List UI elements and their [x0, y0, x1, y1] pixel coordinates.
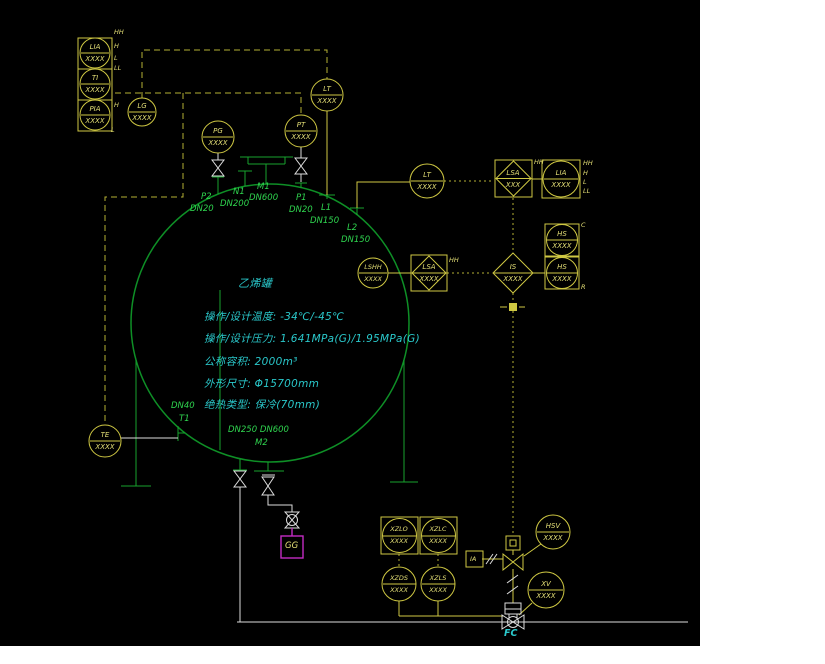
instrument-pg[interactable]: PGXXXX — [198, 125, 238, 149]
shutdown-valve-assembly — [466, 536, 524, 629]
nozzle-l1-dn: DN150 — [310, 216, 339, 226]
spec-dimension: 外形尺寸: Φ15700mm — [204, 376, 319, 391]
nozzle-m1: M1 — [257, 182, 270, 192]
support-leg-left — [121, 360, 151, 486]
alarm-l: L — [583, 178, 587, 186]
nozzle-n1: N1 — [233, 187, 245, 197]
instrument-xzlo[interactable]: XZLOXXXX — [379, 523, 419, 547]
instrument-xzlc[interactable]: XZLCXXXX — [418, 523, 458, 547]
instrument-lg[interactable]: LGXXXX — [122, 100, 162, 124]
alarm-h: H — [114, 42, 119, 50]
hs-suffix-r: R — [581, 283, 586, 291]
alarm-h: H — [114, 101, 119, 109]
control-valve-body — [503, 554, 523, 570]
nozzle-l2: L2 — [347, 223, 357, 233]
pid-drawing-page: LIAXXXX TIXXXX PIAXXXX LGXXXX PGXXXX PTX… — [0, 0, 825, 664]
valve-actuator — [506, 536, 520, 550]
instrument-pt[interactable]: PTXXXX — [281, 119, 321, 143]
spec-insulation: 绝热类型: 保冷(70mm) — [204, 397, 320, 412]
energize-symbol — [509, 303, 517, 311]
instrument-hsv[interactable]: HSVXXXX — [533, 520, 573, 544]
instrument-lsa-mid[interactable]: LSAXXXX — [409, 261, 449, 285]
alarm-hh: HH — [534, 158, 544, 166]
nozzle-p2-dn: DN20 — [190, 204, 214, 214]
instrument-lshh[interactable]: LSHHXXXX — [353, 261, 393, 285]
alarm-hh: HH — [449, 256, 459, 264]
pt-root-valve — [295, 158, 307, 174]
m2-drain-valve — [262, 477, 274, 495]
spec-volume: 公称容积: 2000m³ — [204, 354, 298, 369]
instrument-lt-top[interactable]: LTXXXX — [307, 83, 347, 107]
instrument-lia-right[interactable]: LIAXXXX — [541, 167, 581, 191]
alarm-hh: HH — [583, 159, 593, 167]
alarm-ll: LL — [114, 64, 121, 72]
nozzle-p2: P2 — [201, 192, 212, 202]
alarm-ll: LL — [583, 187, 590, 195]
nozzle-t1: T1 — [179, 414, 190, 424]
diagram-geometry — [0, 0, 700, 646]
support-leg-right — [390, 360, 418, 482]
nozzle-m2-dn: DN250 DN600 — [228, 425, 289, 435]
gg-vent-label: GG — [285, 541, 298, 551]
instrument-is[interactable]: ISXXXX — [493, 261, 533, 285]
instrument-ti[interactable]: TIXXXX — [75, 72, 115, 96]
alarm-h: H — [583, 169, 588, 177]
bottom-outlet-valve — [234, 471, 246, 487]
alarm-l: L — [114, 54, 118, 62]
cad-canvas[interactable]: LIAXXXX TIXXXX PIAXXXX LGXXXX PGXXXX PTX… — [0, 0, 700, 646]
instrument-lt-right[interactable]: LTXXXX — [407, 169, 447, 193]
nozzle-p1: P1 — [296, 193, 307, 203]
tank-title: 乙烯罐 — [238, 275, 272, 291]
instrument-hs-r[interactable]: HSXXXX — [542, 261, 582, 285]
alarm-l: L — [111, 126, 115, 134]
instrument-te[interactable]: TEXXXX — [85, 429, 125, 453]
nozzle-p1-dn: DN20 — [289, 205, 313, 215]
instrument-pia[interactable]: PIAXXXX — [75, 103, 115, 127]
instrument-xzds[interactable]: XZDSXXXX — [379, 572, 419, 596]
nozzle-l1: L1 — [321, 203, 331, 213]
instrument-xzls[interactable]: XZLSXXXX — [418, 572, 458, 596]
nozzle-m1-dn: DN600 — [249, 193, 278, 203]
instrument-ia[interactable]: IA — [470, 555, 476, 563]
nozzle-m2: M2 — [255, 438, 268, 448]
instrument-lsa-top[interactable]: LSAXXX — [493, 167, 533, 191]
instrument-lia-stack[interactable]: LIAXXXX — [75, 41, 115, 65]
spec-pressure: 操作/设计压力: 1.641MPa(G)/1.95MPa(G) — [204, 331, 420, 346]
alarm-hh: HH — [114, 28, 124, 36]
nozzle-l2-dn: DN150 — [341, 235, 370, 245]
instrument-hs-c[interactable]: HSXXXX — [542, 228, 582, 252]
nozzle-t1-dn: DN40 — [171, 401, 195, 411]
nozzle-n1-dn: DN200 — [220, 199, 249, 209]
hs-suffix-c: C — [581, 221, 586, 229]
pg-root-valve — [212, 160, 224, 176]
fc-fail-closed-label: FC — [504, 628, 517, 639]
instrument-xv[interactable]: XVXXXX — [526, 578, 566, 602]
spec-temperature: 操作/设计温度: -34℃/-45℃ — [204, 309, 344, 324]
